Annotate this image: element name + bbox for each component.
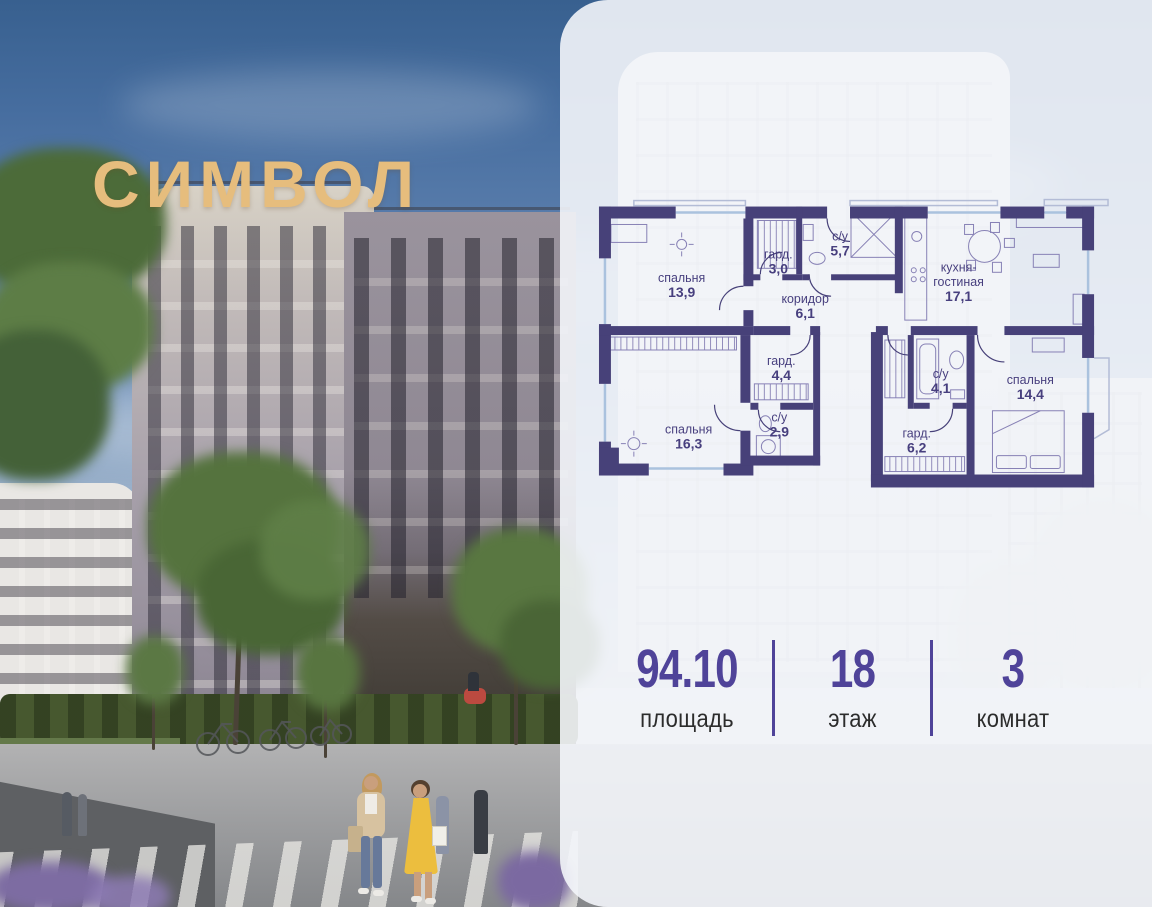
stat-area-label: площадь	[612, 705, 762, 734]
shopping-bag	[432, 826, 447, 846]
room-area-bathroom-3: 4,1	[931, 380, 951, 396]
room-area-bedroom-2: 16,3	[675, 436, 702, 452]
stat-floor-label: этаж	[784, 705, 920, 734]
floor-plan: спальня13,9гард.3,0с/у5,7коридор6,1кухня…	[594, 198, 1112, 498]
room-label-wardrobe-1: гард.	[764, 247, 793, 261]
room-area-corridor: 6,1	[795, 305, 815, 321]
room-area-kitchen-living: 17,1	[945, 288, 972, 304]
room-area-wardrobe-1: 3,0	[769, 260, 789, 276]
pedestrian	[474, 790, 488, 854]
shoe	[411, 896, 422, 902]
room-label-bedroom-1: спальня	[658, 271, 705, 285]
info-card: спальня13,9гард.3,0с/у5,7коридор6,1кухня…	[560, 0, 1152, 907]
room-label-corridor: коридор	[781, 292, 829, 306]
room-label-bedroom-3: спальня	[1007, 373, 1054, 387]
scooter-rider	[468, 672, 479, 691]
shirt	[365, 794, 377, 814]
parked-bicycles	[192, 692, 352, 762]
stat-rooms-value: 3	[951, 642, 1076, 697]
room-area-wardrobe-2: 4,4	[772, 367, 792, 383]
room-area-bedroom-1: 13,9	[668, 284, 695, 300]
room-area-wardrobe-3: 6,2	[907, 440, 927, 456]
room-area-bedroom-3: 14,4	[1017, 386, 1044, 402]
tree-foliage	[126, 636, 184, 704]
listing-poster: СИМВОЛ	[0, 0, 1152, 907]
tree-trunk	[152, 698, 155, 750]
cloud	[120, 70, 540, 140]
stat-rooms-label: комнат	[943, 705, 1084, 734]
flower-bed	[90, 876, 170, 907]
head	[413, 784, 427, 798]
room-label-wardrobe-2: гард.	[767, 354, 796, 368]
room-label-kitchen-living: гостиная	[933, 275, 984, 289]
pedestrian	[62, 792, 72, 836]
brand-logo: СИМВОЛ	[92, 146, 420, 222]
leg	[425, 872, 432, 900]
room-area-bathroom-1: 5,7	[830, 242, 850, 258]
room-label-wardrobe-3: гард.	[902, 427, 931, 441]
stat-area: 94.10 площадь	[602, 642, 772, 733]
room-label-bathroom-3: с/у	[933, 367, 950, 381]
leg	[373, 836, 382, 888]
stat-floor: 18 этаж	[775, 642, 930, 733]
room-label-kitchen-living: кухня-	[941, 260, 977, 274]
head	[364, 776, 378, 790]
room-area-bathroom-2: 2,9	[770, 424, 790, 440]
tree-foliage	[260, 500, 370, 600]
woman-yellow-dress	[398, 782, 448, 906]
stat-floor-value: 18	[792, 642, 913, 697]
woman-beige-jacket	[348, 776, 396, 902]
stat-rooms: 3 комнат	[933, 642, 1093, 733]
shoe	[425, 898, 436, 904]
room-label-bathroom-1: с/у	[832, 229, 849, 243]
shoe	[373, 890, 384, 896]
pedestrian	[78, 794, 87, 836]
stat-area-value: 94.10	[621, 642, 754, 697]
stats-row: 94.10 площадь 18 этаж 3 комнат	[560, 640, 1152, 736]
shoe	[358, 888, 369, 894]
room-label-bedroom-2: спальня	[665, 423, 712, 437]
room-label-bathroom-2: с/у	[771, 411, 788, 425]
leg	[361, 836, 370, 888]
